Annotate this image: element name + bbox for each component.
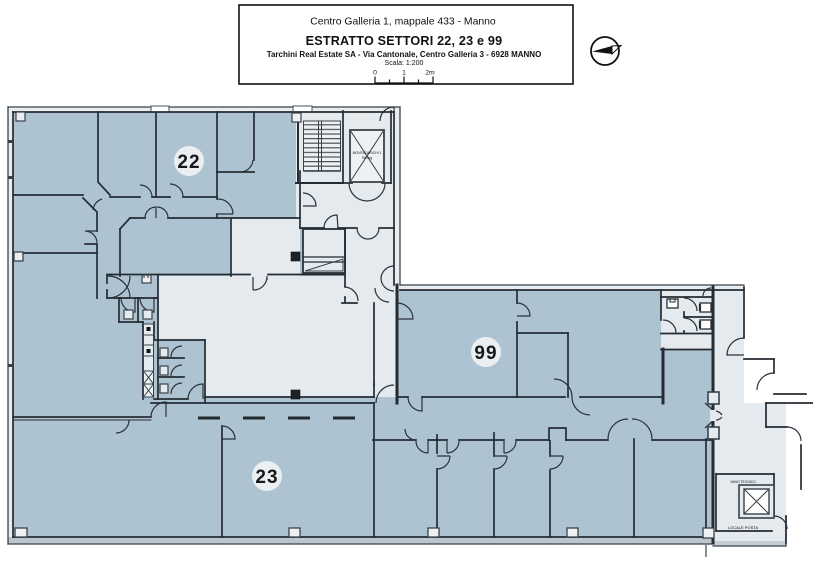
svg-text:MONTACARICHI 1: MONTACARICHI 1 [353,151,382,155]
svg-text:1: 1 [402,70,406,77]
svg-text:900 kg: 900 kg [362,156,372,160]
svg-text:2m: 2m [425,70,435,77]
svg-text:ESTRATTO SETTORI 22, 23 e 99: ESTRATTO SETTORI 22, 23 e 99 [306,34,503,48]
svg-text:VANO TECNICO: VANO TECNICO [730,480,756,484]
svg-text:Scala: 1:200: Scala: 1:200 [385,60,424,67]
svg-text:99: 99 [474,343,497,364]
svg-text:Tarchini Real Estate SA - Via: Tarchini Real Estate SA - Via Cantonale,… [267,50,542,59]
svg-text:23: 23 [255,467,278,488]
svg-text:Centro Galleria 1, mappale 433: Centro Galleria 1, mappale 433 - Manno [310,17,496,28]
svg-text:0: 0 [373,70,377,77]
svg-text:LOCALE POSTA: LOCALE POSTA [728,525,758,530]
svg-text:22: 22 [177,152,200,173]
